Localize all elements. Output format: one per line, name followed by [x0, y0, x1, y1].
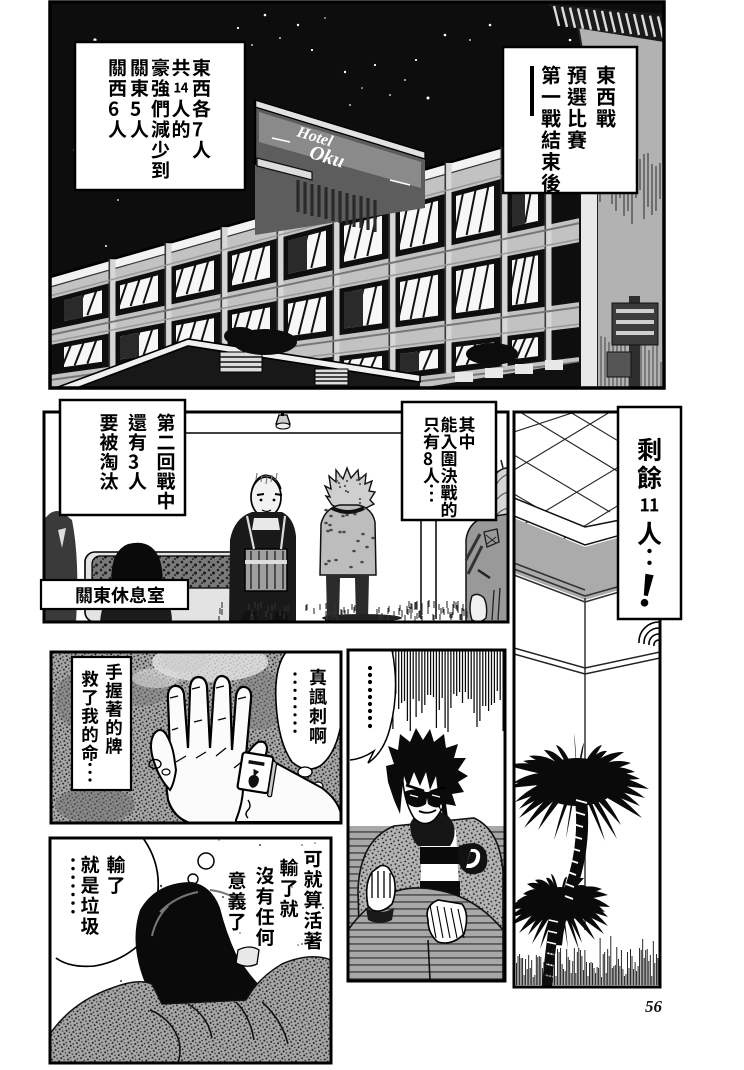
svg-text:56: 56: [645, 997, 663, 1016]
